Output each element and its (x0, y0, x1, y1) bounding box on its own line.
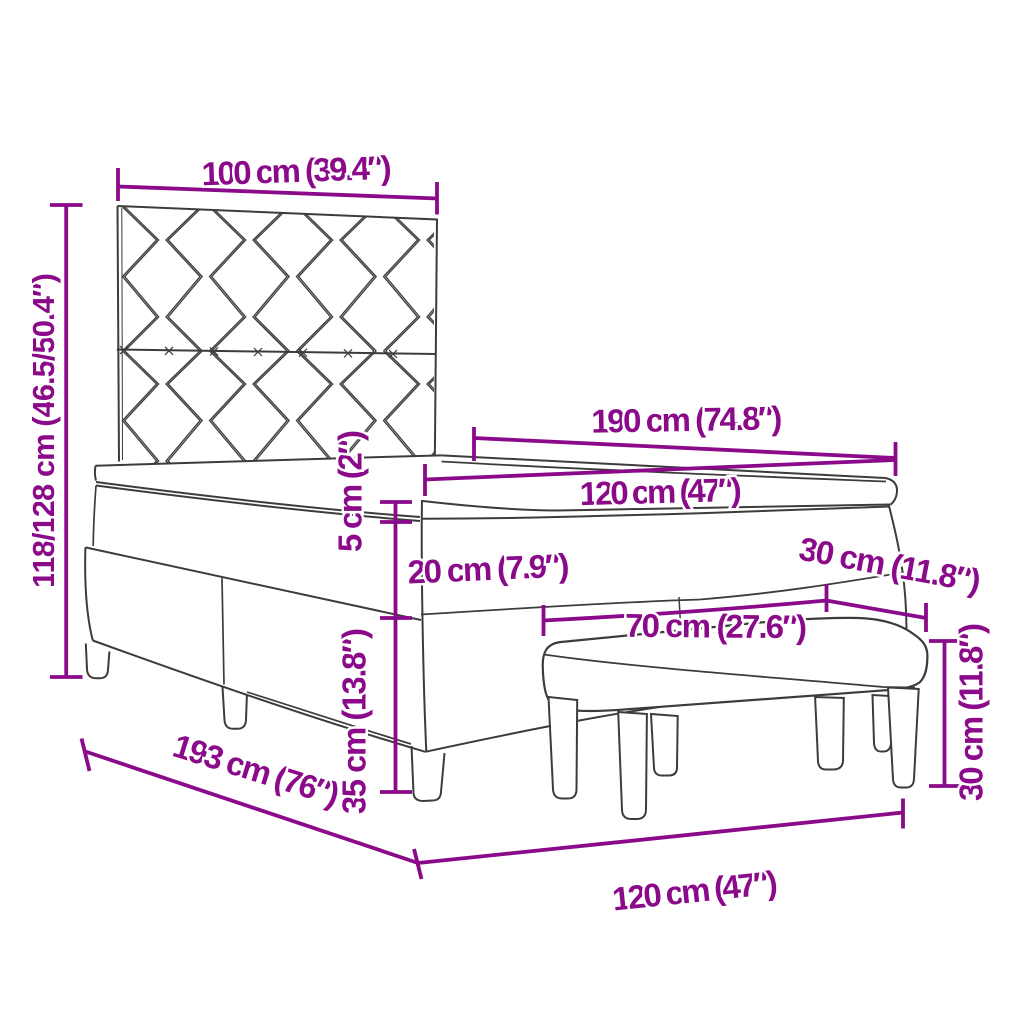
svg-text:120 cm (47″): 120 cm (47″) (579, 471, 742, 512)
svg-text:30 cm (11.8″): 30 cm (11.8″) (953, 623, 990, 801)
svg-text:70 cm (27.6″): 70 cm (27.6″) (625, 607, 807, 646)
svg-text:5 cm (2″): 5 cm (2″) (332, 430, 369, 552)
svg-text:190 cm (74.8″): 190 cm (74.8″) (591, 399, 783, 439)
svg-text:20 cm (7.9″): 20 cm (7.9″) (407, 546, 570, 590)
svg-text:118/128 cm (46.5/50.4″): 118/128 cm (46.5/50.4″) (26, 273, 61, 588)
svg-text:100 cm (39.4″): 100 cm (39.4″) (201, 149, 392, 193)
